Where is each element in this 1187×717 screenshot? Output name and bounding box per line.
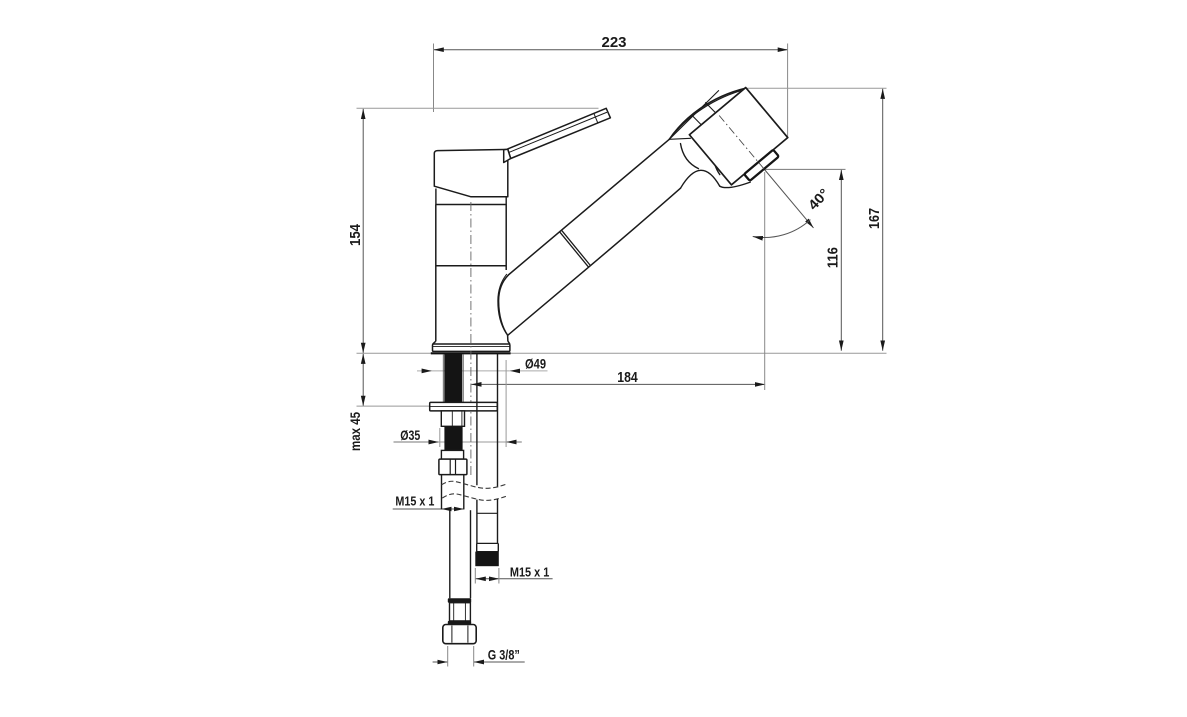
svg-text:184: 184 <box>617 369 638 386</box>
svg-text:M15 x 1: M15 x 1 <box>395 494 434 509</box>
svg-text:max 45: max 45 <box>347 412 363 451</box>
svg-text:116: 116 <box>825 247 842 268</box>
svg-text:G 3/8”: G 3/8” <box>488 647 520 663</box>
svg-text:223: 223 <box>602 34 627 51</box>
svg-text:154: 154 <box>347 223 364 246</box>
svg-text:Ø49: Ø49 <box>525 355 546 371</box>
svg-text:M15 x 1: M15 x 1 <box>510 564 550 579</box>
svg-text:167: 167 <box>866 208 883 229</box>
svg-text:Ø35: Ø35 <box>400 427 420 443</box>
